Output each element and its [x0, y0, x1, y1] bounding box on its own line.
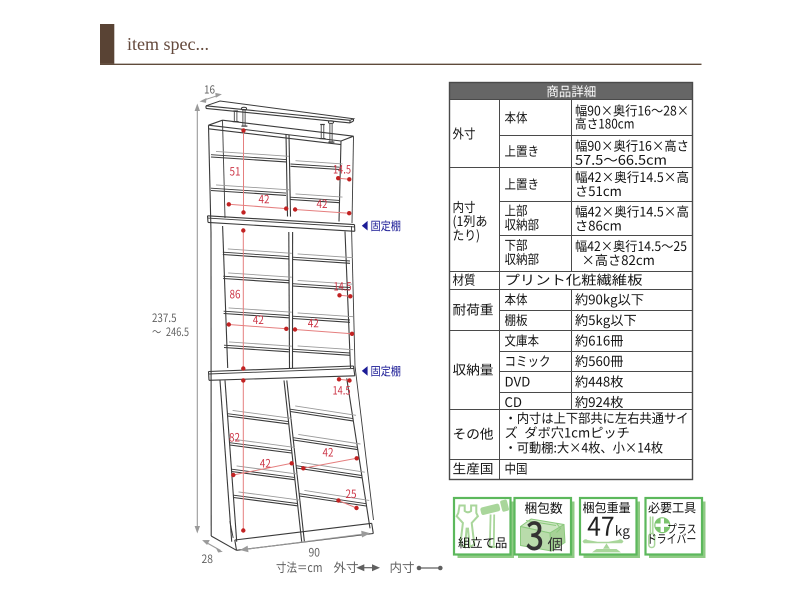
- svg-text:item spec...: item spec...: [127, 34, 209, 54]
